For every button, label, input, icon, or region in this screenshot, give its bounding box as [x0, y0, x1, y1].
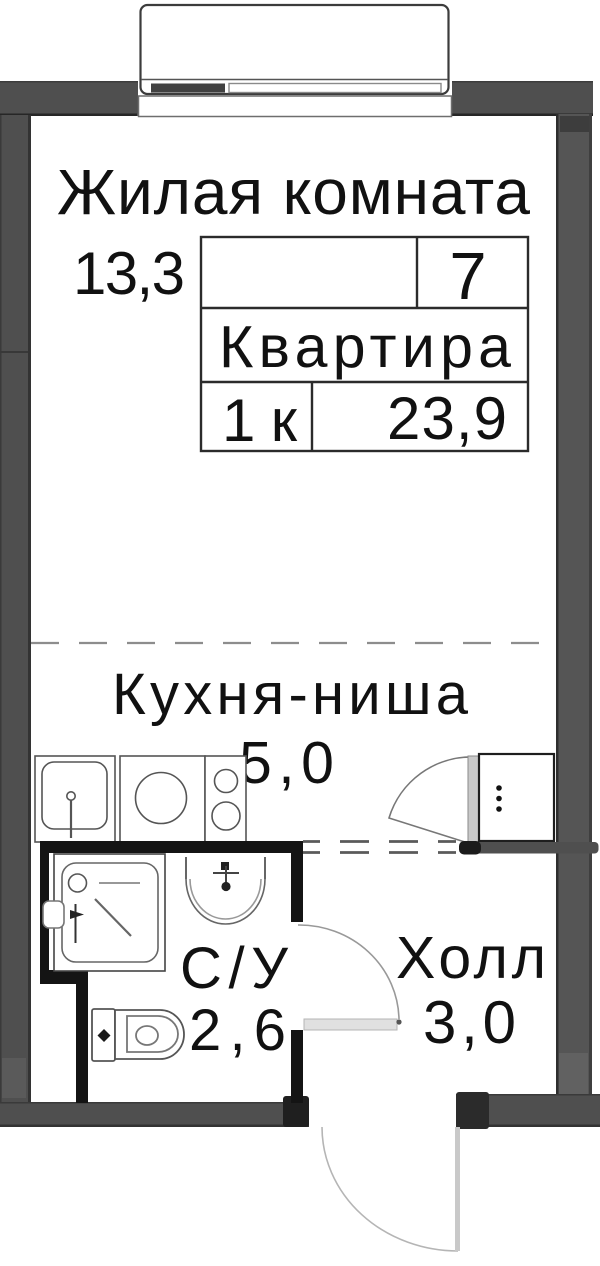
- svg-text:3,0: 3,0: [423, 989, 516, 1056]
- svg-text:С/У: С/У: [180, 936, 289, 1001]
- svg-text:5,0: 5,0: [239, 730, 334, 796]
- svg-text:Кухня-ниша: Кухня-ниша: [112, 662, 469, 727]
- svg-text:Жилая комната: Жилая комната: [57, 156, 530, 228]
- svg-text:23,9: 23,9: [387, 385, 507, 452]
- svg-text:13,3: 13,3: [73, 240, 185, 307]
- svg-text:2,6: 2,6: [189, 998, 286, 1063]
- svg-text:7: 7: [449, 239, 486, 314]
